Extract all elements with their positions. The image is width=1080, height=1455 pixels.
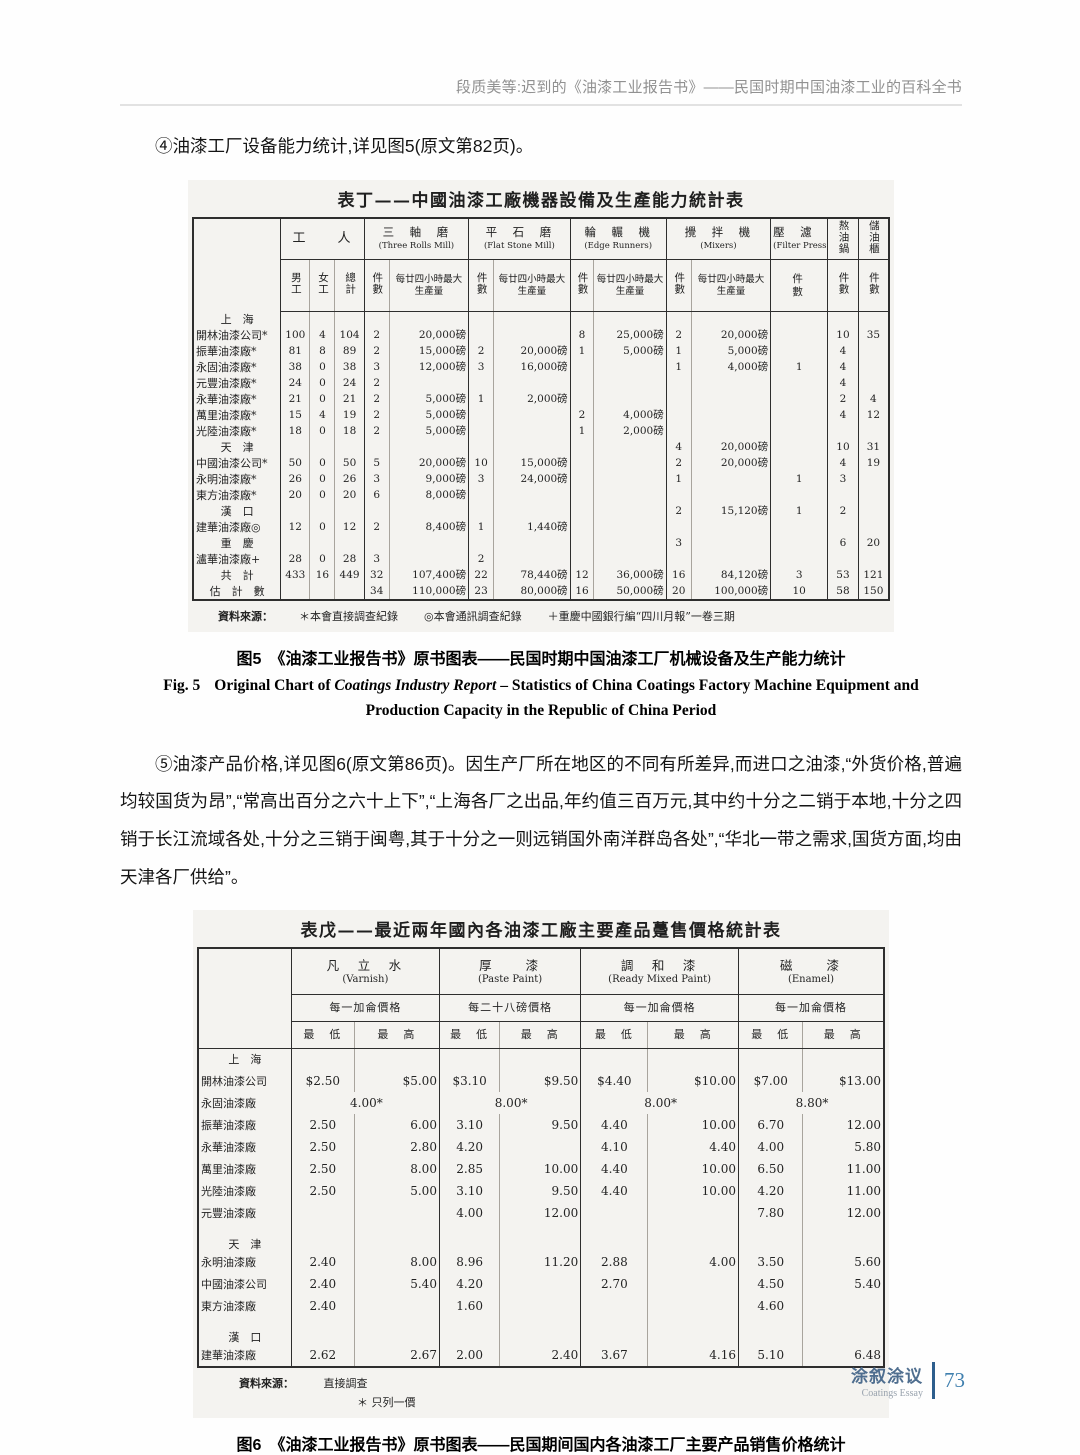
table-cell: 2 — [364, 328, 389, 344]
table-cell: 3 — [364, 472, 389, 488]
table-cell: 12,000磅 — [389, 360, 468, 376]
table-cell — [389, 440, 468, 456]
table-cell: 1 — [771, 472, 828, 488]
table-cell: 12 — [570, 568, 594, 584]
table-cell — [570, 376, 594, 392]
table-cell: 20 — [335, 488, 364, 504]
table-cell: 9,000磅 — [389, 472, 468, 488]
table6-corner-cell — [198, 948, 291, 1048]
table-cell: 5.40 — [354, 1273, 439, 1295]
table-cell — [335, 536, 364, 552]
table-cell — [771, 408, 828, 424]
table-cell: 5.80 — [803, 1136, 884, 1158]
table-cell: 4.00* — [291, 1092, 439, 1114]
table-cell: 1 — [570, 344, 594, 360]
table-cell: 2.40 — [291, 1295, 354, 1317]
table5-header-flat-stone-mill: 平 石 磨 (Flat Stone Mill) — [469, 218, 571, 260]
table-cell: 2.40 — [500, 1345, 581, 1367]
table-cell: 26 — [335, 472, 364, 488]
table-cell: 3 — [771, 568, 828, 584]
table-cell: 4 — [828, 360, 859, 376]
table-cell: 20,000磅 — [389, 328, 468, 344]
table-cell: 3.10 — [439, 1180, 499, 1202]
table-cell — [570, 472, 594, 488]
table-cell: 2 — [364, 344, 389, 360]
table-cell — [771, 312, 828, 328]
table-cell — [803, 1224, 884, 1251]
table-cell: 4.16 — [648, 1345, 739, 1367]
table-cell — [310, 504, 335, 520]
row-label: 永固油漆廠 — [198, 1092, 291, 1114]
table-row: 永華油漆廠*2102125,000磅12,000磅24 — [193, 392, 889, 408]
table-cell: 3 — [666, 536, 691, 552]
table-cell: 8 — [310, 344, 335, 360]
table-cell: 0 — [310, 552, 335, 568]
row-label: 永明油漆廠 — [198, 1251, 291, 1273]
col-male-workers: 男工 — [281, 260, 310, 312]
table-cell — [828, 552, 859, 568]
table-cell — [500, 1317, 581, 1344]
table-cell: $3.10 — [439, 1070, 499, 1092]
table-cell — [771, 328, 828, 344]
table-cell: 3.67 — [581, 1345, 648, 1367]
row-label: 中國油漆公司* — [193, 456, 281, 472]
table-cell: 2 — [364, 520, 389, 536]
table-cell — [858, 376, 889, 392]
col-max: 最 高 — [803, 1021, 884, 1048]
table-cell — [594, 392, 666, 408]
table-cell: 3 — [828, 472, 859, 488]
col-min: 最 低 — [291, 1021, 354, 1048]
table-cell: 4 — [666, 440, 691, 456]
row-label: 估 計 數 — [193, 584, 281, 600]
table-cell — [691, 392, 770, 408]
table-cell: 1 — [666, 472, 691, 488]
row-label: 天 津 — [198, 1224, 291, 1251]
table-cell: 2 — [469, 552, 494, 568]
table-cell — [291, 1317, 354, 1344]
table-cell — [666, 312, 691, 328]
table-cell: 4 — [828, 456, 859, 472]
table-row: 永明油漆廠*2602639,000磅324,000磅113 — [193, 472, 889, 488]
row-label: 上 海 — [193, 312, 281, 328]
table-cell — [310, 440, 335, 456]
table-cell — [335, 312, 364, 328]
table-cell: 18 — [335, 424, 364, 440]
table-cell: 20 — [281, 488, 310, 504]
table-cell — [281, 504, 310, 520]
table-cell: 12.00 — [803, 1114, 884, 1136]
unit-per-gallon: 每一加侖價格 — [739, 994, 884, 1021]
unit-per-gallon: 每一加侖價格 — [291, 994, 439, 1021]
table-cell: 8 — [570, 328, 594, 344]
table-cell: 5.00 — [354, 1180, 439, 1202]
table-cell: 20,000磅 — [691, 328, 770, 344]
table-cell — [570, 312, 594, 328]
table-cell — [310, 312, 335, 328]
table-cell — [570, 552, 594, 568]
col-min: 最 低 — [739, 1021, 803, 1048]
table6-source-note: 資料來源： 直接調查 ＊ 只列一價 — [197, 1375, 885, 1410]
table-cell: $7.00 — [739, 1070, 803, 1092]
row-label: 漢 口 — [193, 504, 281, 520]
table-row: 萬里油漆廠*1541925,000磅24,000磅412 — [193, 408, 889, 424]
table-cell: 20,000磅 — [389, 456, 468, 472]
row-label: 共 計 — [193, 568, 281, 584]
table-cell — [594, 360, 666, 376]
running-header: 段质美等:迟到的《油漆工业报告书》——民国时期中国油漆工业的百科全书 — [120, 76, 962, 97]
table-cell: 4.00 — [739, 1136, 803, 1158]
table-cell: 8.00 — [354, 1251, 439, 1273]
table-cell — [494, 536, 571, 552]
table-cell: 4 — [828, 344, 859, 360]
table5-header-mixers: 攪 拌 機 (Mixers) — [666, 218, 770, 260]
table-cell: 2.50 — [291, 1180, 354, 1202]
table-cell: 4.40 — [648, 1136, 739, 1158]
row-label: 建華油漆廠◎ — [193, 520, 281, 536]
page-footer: 涂叙涂议 Coatings Essay 73 — [851, 1362, 965, 1399]
table-cell — [281, 312, 310, 328]
table-cell: 1 — [469, 392, 494, 408]
table-cell — [494, 376, 571, 392]
table-row: 上 海 — [198, 1048, 884, 1070]
table-cell — [666, 424, 691, 440]
table-cell — [581, 1224, 648, 1251]
table-cell: 121 — [858, 568, 889, 584]
table-cell: 4.00 — [648, 1251, 739, 1273]
journal-name-en: Coatings Essay — [851, 1388, 923, 1399]
table-cell: 2 — [666, 328, 691, 344]
table-cell: 58 — [828, 584, 859, 600]
table-cell: 2,000磅 — [594, 424, 666, 440]
table-cell: 2.40 — [291, 1273, 354, 1295]
table-cell — [335, 504, 364, 520]
table-cell — [803, 1048, 884, 1070]
table-cell — [494, 328, 571, 344]
table-cell: 2.80 — [354, 1136, 439, 1158]
table-cell: 100,000磅 — [691, 584, 770, 600]
table-cell: 23 — [469, 584, 494, 600]
table-cell: 2 — [364, 392, 389, 408]
table-cell: 3 — [469, 472, 494, 488]
table-row: 共 計4331644932107,400磅2278,440磅1236,000磅1… — [193, 568, 889, 584]
table-cell: 10.00 — [648, 1158, 739, 1180]
table-cell — [469, 312, 494, 328]
table-cell — [691, 488, 770, 504]
table-cell — [691, 536, 770, 552]
table-cell: 110,000磅 — [389, 584, 468, 600]
table6-header-varnish: 凡 立 水 (Varnish) — [291, 948, 439, 994]
table-cell: 3 — [364, 360, 389, 376]
table-cell: 5.40 — [803, 1273, 884, 1295]
table5-header-filter-press: 壓 濾 機 (Filter Press) — [771, 218, 828, 260]
table-cell — [771, 392, 828, 408]
table-cell — [389, 536, 468, 552]
table-cell — [291, 1202, 354, 1224]
table-cell — [594, 536, 666, 552]
col-qty: 件數 — [364, 260, 389, 312]
table-cell — [310, 536, 335, 552]
table-cell: 1 — [771, 504, 828, 520]
table-cell: 11.00 — [803, 1180, 884, 1202]
table-cell: 15 — [281, 408, 310, 424]
table-cell — [500, 1136, 581, 1158]
row-label: 振華油漆廠 — [198, 1114, 291, 1136]
table-cell: 7.80 — [739, 1202, 803, 1224]
table-row: 光陸油漆廠*1801825,000磅12,000磅 — [193, 424, 889, 440]
page-content: 段质美等:迟到的《油漆工业报告书》——民国时期中国油漆工业的百科全书 ④油漆工厂… — [0, 0, 1080, 1455]
table-cell — [354, 1224, 439, 1251]
table-cell — [858, 312, 889, 328]
table-cell — [771, 552, 828, 568]
table-cell — [494, 488, 571, 504]
table-cell: 2 — [364, 376, 389, 392]
table-cell — [291, 1048, 354, 1070]
table-cell: 2 — [364, 408, 389, 424]
table-cell — [828, 488, 859, 504]
table-row: 永固油漆廠4.00*8.00*8.00*8.80* — [198, 1092, 884, 1114]
table-cell: 6.70 — [739, 1114, 803, 1136]
table-cell — [469, 408, 494, 424]
table-cell: 10.00 — [500, 1158, 581, 1180]
unit-per-28-pounds: 每二十八磅價格 — [439, 994, 580, 1021]
table-cell: 4,000磅 — [594, 408, 666, 424]
table-cell — [500, 1224, 581, 1251]
table-cell — [828, 424, 859, 440]
table-cell — [828, 312, 859, 328]
table-cell: 2 — [364, 424, 389, 440]
figure5-caption-en: Fig. 5Original Chart of Coatings Industr… — [136, 673, 946, 724]
table-cell: 4.20 — [439, 1136, 499, 1158]
table-cell: 8.00 — [354, 1158, 439, 1180]
table-row: 瀘華油漆廠+2802832 — [193, 552, 889, 568]
table6-title: 表戊——最近兩年國內各油漆工廠主要產品躉售價格統計表 — [197, 916, 885, 941]
table6-header-paste-paint: 厚 漆 (Paste Paint) — [439, 948, 580, 994]
table-cell — [691, 552, 770, 568]
table-cell — [354, 1202, 439, 1224]
table-cell: 32 — [364, 568, 389, 584]
table-cell: 12 — [281, 520, 310, 536]
table-cell — [310, 584, 335, 600]
table5-header-edge-runners: 輪 輾 機 (Edge Runners) — [570, 218, 666, 260]
table-cell — [494, 408, 571, 424]
table-cell: 20 — [858, 536, 889, 552]
col-capacity: 每廿四小時最大生產量 — [594, 260, 666, 312]
table-cell — [500, 1273, 581, 1295]
table-cell: 0 — [310, 456, 335, 472]
table-cell: 6.50 — [739, 1158, 803, 1180]
col-qty: 件數 — [858, 260, 889, 312]
table-cell: 4 — [310, 408, 335, 424]
journal-page: 段质美等:迟到的《油漆工业报告书》——民国时期中国油漆工业的百科全书 ④油漆工厂… — [0, 0, 1080, 1455]
table-cell: 24 — [281, 376, 310, 392]
table-row: 中國油漆公司2.405.404.202.704.505.40 — [198, 1273, 884, 1295]
table-row: 中國油漆公司*50050520,000磅1015,000磅220,000磅419 — [193, 456, 889, 472]
table-cell: 5.10 — [739, 1345, 803, 1367]
table-cell: 15,120磅 — [691, 504, 770, 520]
table-cell: 12 — [858, 408, 889, 424]
table-cell — [570, 392, 594, 408]
table-cell — [594, 520, 666, 536]
table-row: 光陸油漆廠2.505.003.109.504.4010.004.2011.00 — [198, 1180, 884, 1202]
table-cell — [439, 1048, 499, 1070]
table-row: 元豐油漆廠*2402424 — [193, 376, 889, 392]
table-cell: 2.00 — [439, 1345, 499, 1367]
table-cell — [494, 504, 571, 520]
table-cell: $2.50 — [291, 1070, 354, 1092]
table-row: 永華油漆廠2.502.804.204.104.404.005.80 — [198, 1136, 884, 1158]
table-cell — [469, 536, 494, 552]
table-cell: 433 — [281, 568, 310, 584]
table-cell: 26 — [281, 472, 310, 488]
table-cell: 35 — [858, 328, 889, 344]
table-cell — [581, 1202, 648, 1224]
table-cell: 8.00* — [439, 1092, 580, 1114]
unit-per-gallon: 每一加侖價格 — [581, 994, 739, 1021]
table-cell: 81 — [281, 344, 310, 360]
table-row: 上 海 — [193, 312, 889, 328]
row-label: 中國油漆公司 — [198, 1273, 291, 1295]
table-cell: 4.40 — [581, 1158, 648, 1180]
table-cell — [666, 376, 691, 392]
col-qty: 件數 — [570, 260, 594, 312]
table-cell — [570, 504, 594, 520]
table-row: 開林油漆公司*1004104220,000磅825,000磅220,000磅10… — [193, 328, 889, 344]
table-cell: 2.88 — [581, 1251, 648, 1273]
table-cell — [291, 1224, 354, 1251]
table-cell — [581, 1317, 648, 1344]
table-cell — [691, 424, 770, 440]
table-cell: 4 — [828, 408, 859, 424]
table-cell: 50 — [281, 456, 310, 472]
table-cell: 10 — [469, 456, 494, 472]
table5-title: 表丁——中國油漆工廠機器設備及生產能力統計表 — [192, 186, 890, 211]
workers-label: 工 人 — [292, 231, 352, 246]
table-cell: 10.00 — [648, 1114, 739, 1136]
table-cell: 38 — [335, 360, 364, 376]
row-label: 上 海 — [198, 1048, 291, 1070]
row-label: 永華油漆廠* — [193, 392, 281, 408]
table-cell: 2.40 — [291, 1251, 354, 1273]
table-cell: 10 — [828, 440, 859, 456]
table-cell: 8,000磅 — [389, 488, 468, 504]
row-label: 永明油漆廠* — [193, 472, 281, 488]
table-cell: 2.50 — [291, 1136, 354, 1158]
table-cell: 0 — [310, 424, 335, 440]
table-cell — [828, 520, 859, 536]
row-label: 東方油漆廠* — [193, 488, 281, 504]
table-cell: 12.00 — [500, 1202, 581, 1224]
table-cell: 5,000磅 — [389, 392, 468, 408]
table-cell — [439, 1224, 499, 1251]
table-cell: 89 — [335, 344, 364, 360]
col-total-workers: 總計 — [335, 260, 364, 312]
table-cell — [739, 1224, 803, 1251]
table-cell — [364, 504, 389, 520]
table-cell — [469, 440, 494, 456]
table-row: 重 慶3620 — [193, 536, 889, 552]
table-cell — [335, 440, 364, 456]
table-cell: 78,440磅 — [494, 568, 571, 584]
table-cell — [439, 1317, 499, 1344]
paragraph-item5: ⑤油漆产品价格,详见图6(原文第86页)。因生产厂所在地区的不同有所差异,而进口… — [120, 746, 962, 897]
table-cell: 0 — [310, 488, 335, 504]
row-label: 天 津 — [193, 440, 281, 456]
header-divider — [120, 104, 962, 106]
table-cell — [570, 536, 594, 552]
table-cell: 2 — [570, 408, 594, 424]
table-cell: 19 — [335, 408, 364, 424]
table-cell — [648, 1224, 739, 1251]
table-cell: 4 — [828, 376, 859, 392]
table-cell: 4 — [858, 392, 889, 408]
row-label: 萬里油漆廠* — [193, 408, 281, 424]
table-cell — [858, 488, 889, 504]
table-cell — [648, 1317, 739, 1344]
table-cell — [858, 520, 889, 536]
table-cell: 0 — [310, 360, 335, 376]
table-cell — [494, 424, 571, 440]
figure6-caption-cn: 图6 《油漆工业报告书》原书图表——民国期间国内各油漆工厂主要产品销售价格统计 — [120, 1431, 962, 1455]
table-cell — [389, 312, 468, 328]
table-cell: 20,000磅 — [691, 440, 770, 456]
table-cell: 10.00 — [648, 1180, 739, 1202]
table-cell: 449 — [335, 568, 364, 584]
table-cell: 0 — [310, 392, 335, 408]
table-cell: 10 — [771, 584, 828, 600]
table-cell — [771, 376, 828, 392]
table-cell: 2.85 — [439, 1158, 499, 1180]
table-cell — [594, 552, 666, 568]
table-cell — [691, 472, 770, 488]
table-cell — [570, 456, 594, 472]
table-cell: 107,400磅 — [389, 568, 468, 584]
table-cell — [771, 456, 828, 472]
col-qty: 件數 — [469, 260, 494, 312]
table-cell: 24 — [335, 376, 364, 392]
table-cell: 15,000磅 — [494, 456, 571, 472]
table-cell — [858, 344, 889, 360]
table-cell — [666, 520, 691, 536]
table-cell: 12 — [335, 520, 364, 536]
row-label: 建華油漆廠 — [198, 1345, 291, 1367]
table-cell: 2.62 — [291, 1345, 354, 1367]
table-cell: 5.60 — [803, 1251, 884, 1273]
table-cell: 2 — [828, 392, 859, 408]
table-cell — [581, 1048, 648, 1070]
table-cell: 80,000磅 — [494, 584, 571, 600]
table-cell: 2 — [828, 504, 859, 520]
table-cell — [803, 1317, 884, 1344]
table-cell — [648, 1202, 739, 1224]
table-cell — [739, 1048, 803, 1070]
table-cell — [771, 488, 828, 504]
table-cell: 16 — [310, 568, 335, 584]
table-cell: $10.00 — [648, 1070, 739, 1092]
table-row: 開林油漆公司$2.50$5.00$3.10$9.50$4.40$10.00$7.… — [198, 1070, 884, 1092]
table-cell — [354, 1048, 439, 1070]
table-row: 估 計 數34110,000磅2380,000磅1650,000磅20100,0… — [193, 584, 889, 600]
table-cell — [594, 504, 666, 520]
table-cell: $5.00 — [354, 1070, 439, 1092]
table-cell — [858, 504, 889, 520]
table-cell — [594, 312, 666, 328]
table5-corner-cell — [193, 218, 281, 312]
table-cell: 15,000磅 — [389, 344, 468, 360]
table6: 凡 立 水 (Varnish) 厚 漆 (Paste Paint) 調 和 漆 … — [197, 947, 885, 1367]
paragraph-item4: ④油漆工厂设备能力统计,详见图5(原文第82页)。 — [120, 128, 962, 166]
table-cell — [570, 440, 594, 456]
